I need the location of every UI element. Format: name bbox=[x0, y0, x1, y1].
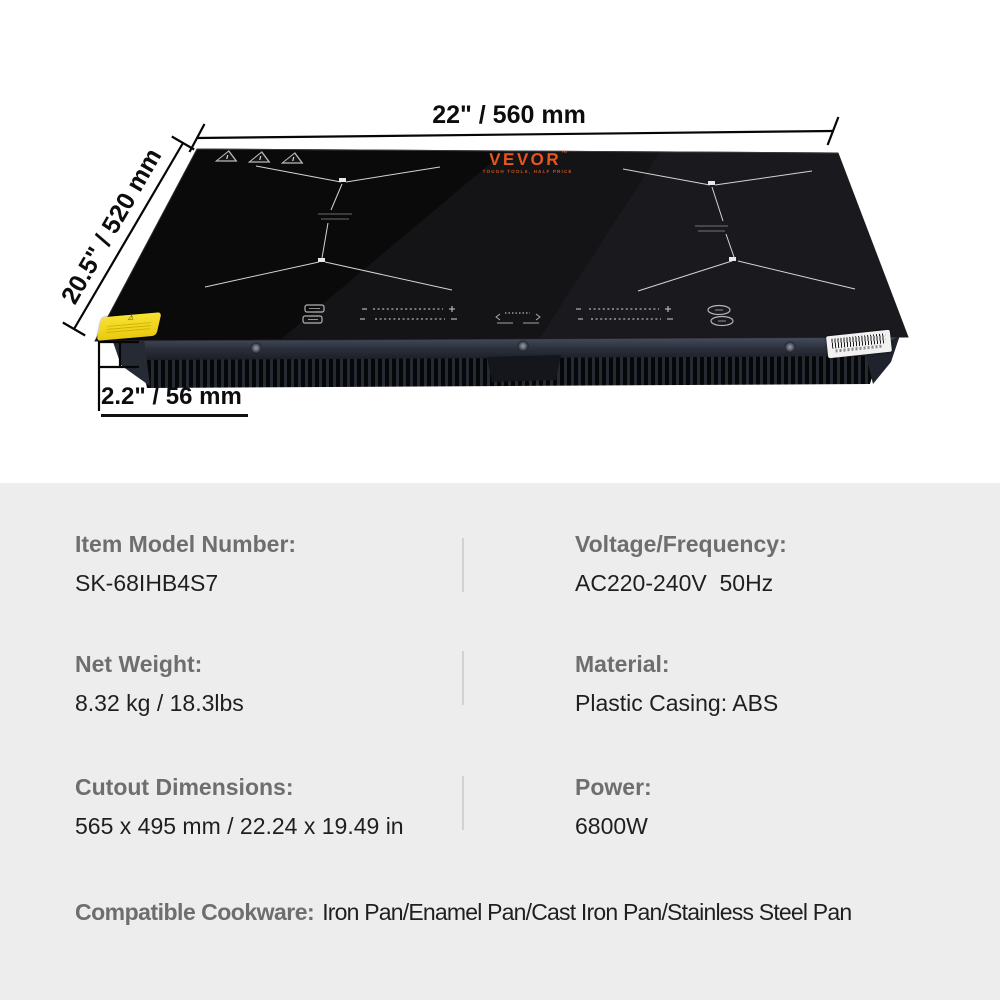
spec-label: Material: bbox=[575, 652, 778, 676]
spec-item-cutout: Cutout Dimensions: 565 x 495 mm / 22.24 … bbox=[75, 775, 404, 838]
trademark-symbol: ™ bbox=[561, 151, 567, 157]
spec-item-material: Material: Plastic Casing: ABS bbox=[575, 652, 778, 715]
housing bbox=[112, 335, 900, 388]
cookware-value: Iron Pan/Enamel Pan/Cast Iron Pan/Stainl… bbox=[322, 899, 851, 925]
spec-value: 565 x 495 mm / 22.24 x 19.49 in bbox=[75, 814, 404, 838]
spec-value: Plastic Casing: ABS bbox=[575, 691, 778, 715]
spec-value: AC220-240V 50Hz bbox=[575, 571, 787, 595]
screw bbox=[251, 343, 262, 354]
spec-item-model: Item Model Number: SK-68IHB4S7 bbox=[75, 532, 296, 595]
glass-top bbox=[95, 149, 908, 341]
screw bbox=[785, 342, 796, 353]
spec-panel: Item Model Number: SK-68IHB4S7 Voltage/F… bbox=[0, 483, 1000, 1000]
brand-tagline: TOUGH TOOLS, HALF PRICE bbox=[468, 170, 588, 175]
brand-logo: VEVOR™ TOUGH TOOLS, HALF PRICE bbox=[468, 151, 589, 175]
height-dimension-label: 2.2" / 56 mm bbox=[101, 383, 248, 417]
spec-label: Voltage/Frequency: bbox=[575, 532, 787, 556]
column-divider bbox=[462, 776, 464, 830]
spec-item-weight: Net Weight: 8.32 kg / 18.3lbs bbox=[75, 652, 244, 715]
spec-value: 6800W bbox=[575, 814, 652, 838]
product-illustration-area: ⚠ VEVOR™ TOUGH TOOLS, HALF PRICE 22" / 5… bbox=[0, 0, 1000, 483]
screw bbox=[518, 341, 529, 352]
width-dimension-label: 22" / 560 mm bbox=[359, 101, 659, 130]
spec-label: Power: bbox=[575, 775, 652, 799]
spec-label: Net Weight: bbox=[75, 652, 244, 676]
spec-value: 8.32 kg / 18.3lbs bbox=[75, 691, 244, 715]
spec-item-power: Power: 6800W bbox=[575, 775, 652, 838]
column-divider bbox=[462, 651, 464, 705]
spec-item-voltage: Voltage/Frequency: AC220-240V 50Hz bbox=[575, 532, 787, 595]
column-divider bbox=[462, 538, 464, 592]
center-notch bbox=[487, 355, 561, 382]
cookware-row: Compatible Cookware:Iron Pan/Enamel Pan/… bbox=[75, 899, 851, 926]
spec-label: Item Model Number: bbox=[75, 532, 296, 556]
cookware-label: Compatible Cookware: bbox=[75, 899, 314, 925]
brand-name: VEVOR bbox=[489, 150, 562, 169]
spec-label: Cutout Dimensions: bbox=[75, 775, 404, 799]
spec-value: SK-68IHB4S7 bbox=[75, 571, 296, 595]
